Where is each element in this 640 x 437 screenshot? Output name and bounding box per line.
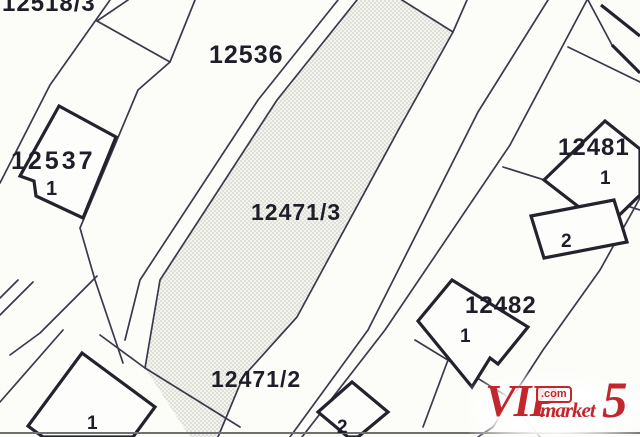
building-label-bottomleft-1: 1	[87, 413, 98, 434]
building-bottom-2	[318, 382, 388, 437]
boundary-northeast-a	[568, 47, 640, 82]
building-label-12481-1: 1	[600, 168, 611, 189]
building-label-12482-1: 1	[460, 326, 471, 347]
parcel-label-12537: 12537	[11, 147, 96, 175]
building-label-12481-2: 2	[561, 231, 572, 252]
building-label-bottom-2: 2	[337, 417, 348, 437]
parcel-label-12471-3: 12471/3	[251, 199, 341, 225]
building-northeast-corner-b	[612, 45, 640, 73]
building-label-12537-1: 1	[46, 178, 57, 200]
parcel-label-12482: 12482	[465, 292, 537, 319]
boundary-south-12482	[423, 360, 448, 427]
cadastral-map: 12518/31253612537112471/312471/212481121…	[0, 0, 640, 437]
boundary-12518-notch-b	[97, 21, 170, 62]
parcel-label-12518-3: 12518/3	[2, 0, 96, 17]
boundary-southwest-b	[0, 280, 18, 298]
boundary-strip-east-top	[453, 0, 467, 32]
building-12481-2	[531, 200, 627, 258]
parcel-label-12471-2: 12471/2	[211, 366, 301, 392]
map-canvas: 12518/31253612537112471/312471/212481121…	[0, 0, 640, 437]
boundary-northeast-b	[588, 0, 612, 45]
parcel-label-12536: 12536	[209, 41, 284, 69]
building-northeast-corner-a	[601, 5, 640, 36]
boundary-southwest-d	[10, 276, 97, 355]
parcel-label-12481: 12481	[558, 134, 630, 161]
boundary-southwest-c	[0, 282, 33, 315]
